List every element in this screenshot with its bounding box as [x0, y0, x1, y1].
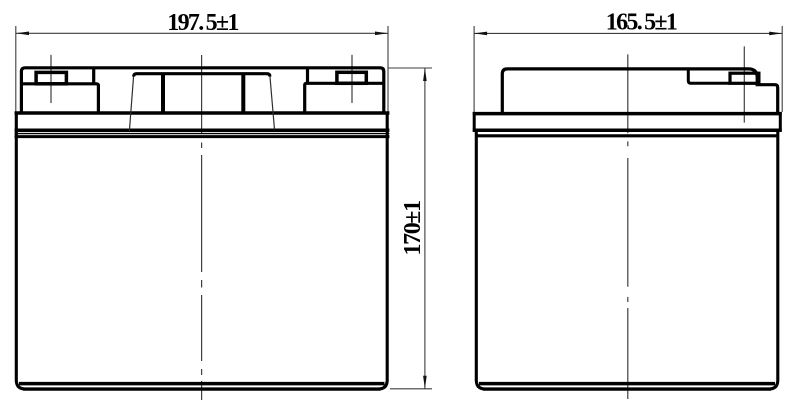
svg-text:165. 5±1: 165. 5±1 [606, 10, 677, 36]
svg-text:197. 5±1: 197. 5±1 [167, 10, 238, 36]
svg-text:170±1: 170±1 [400, 201, 426, 256]
